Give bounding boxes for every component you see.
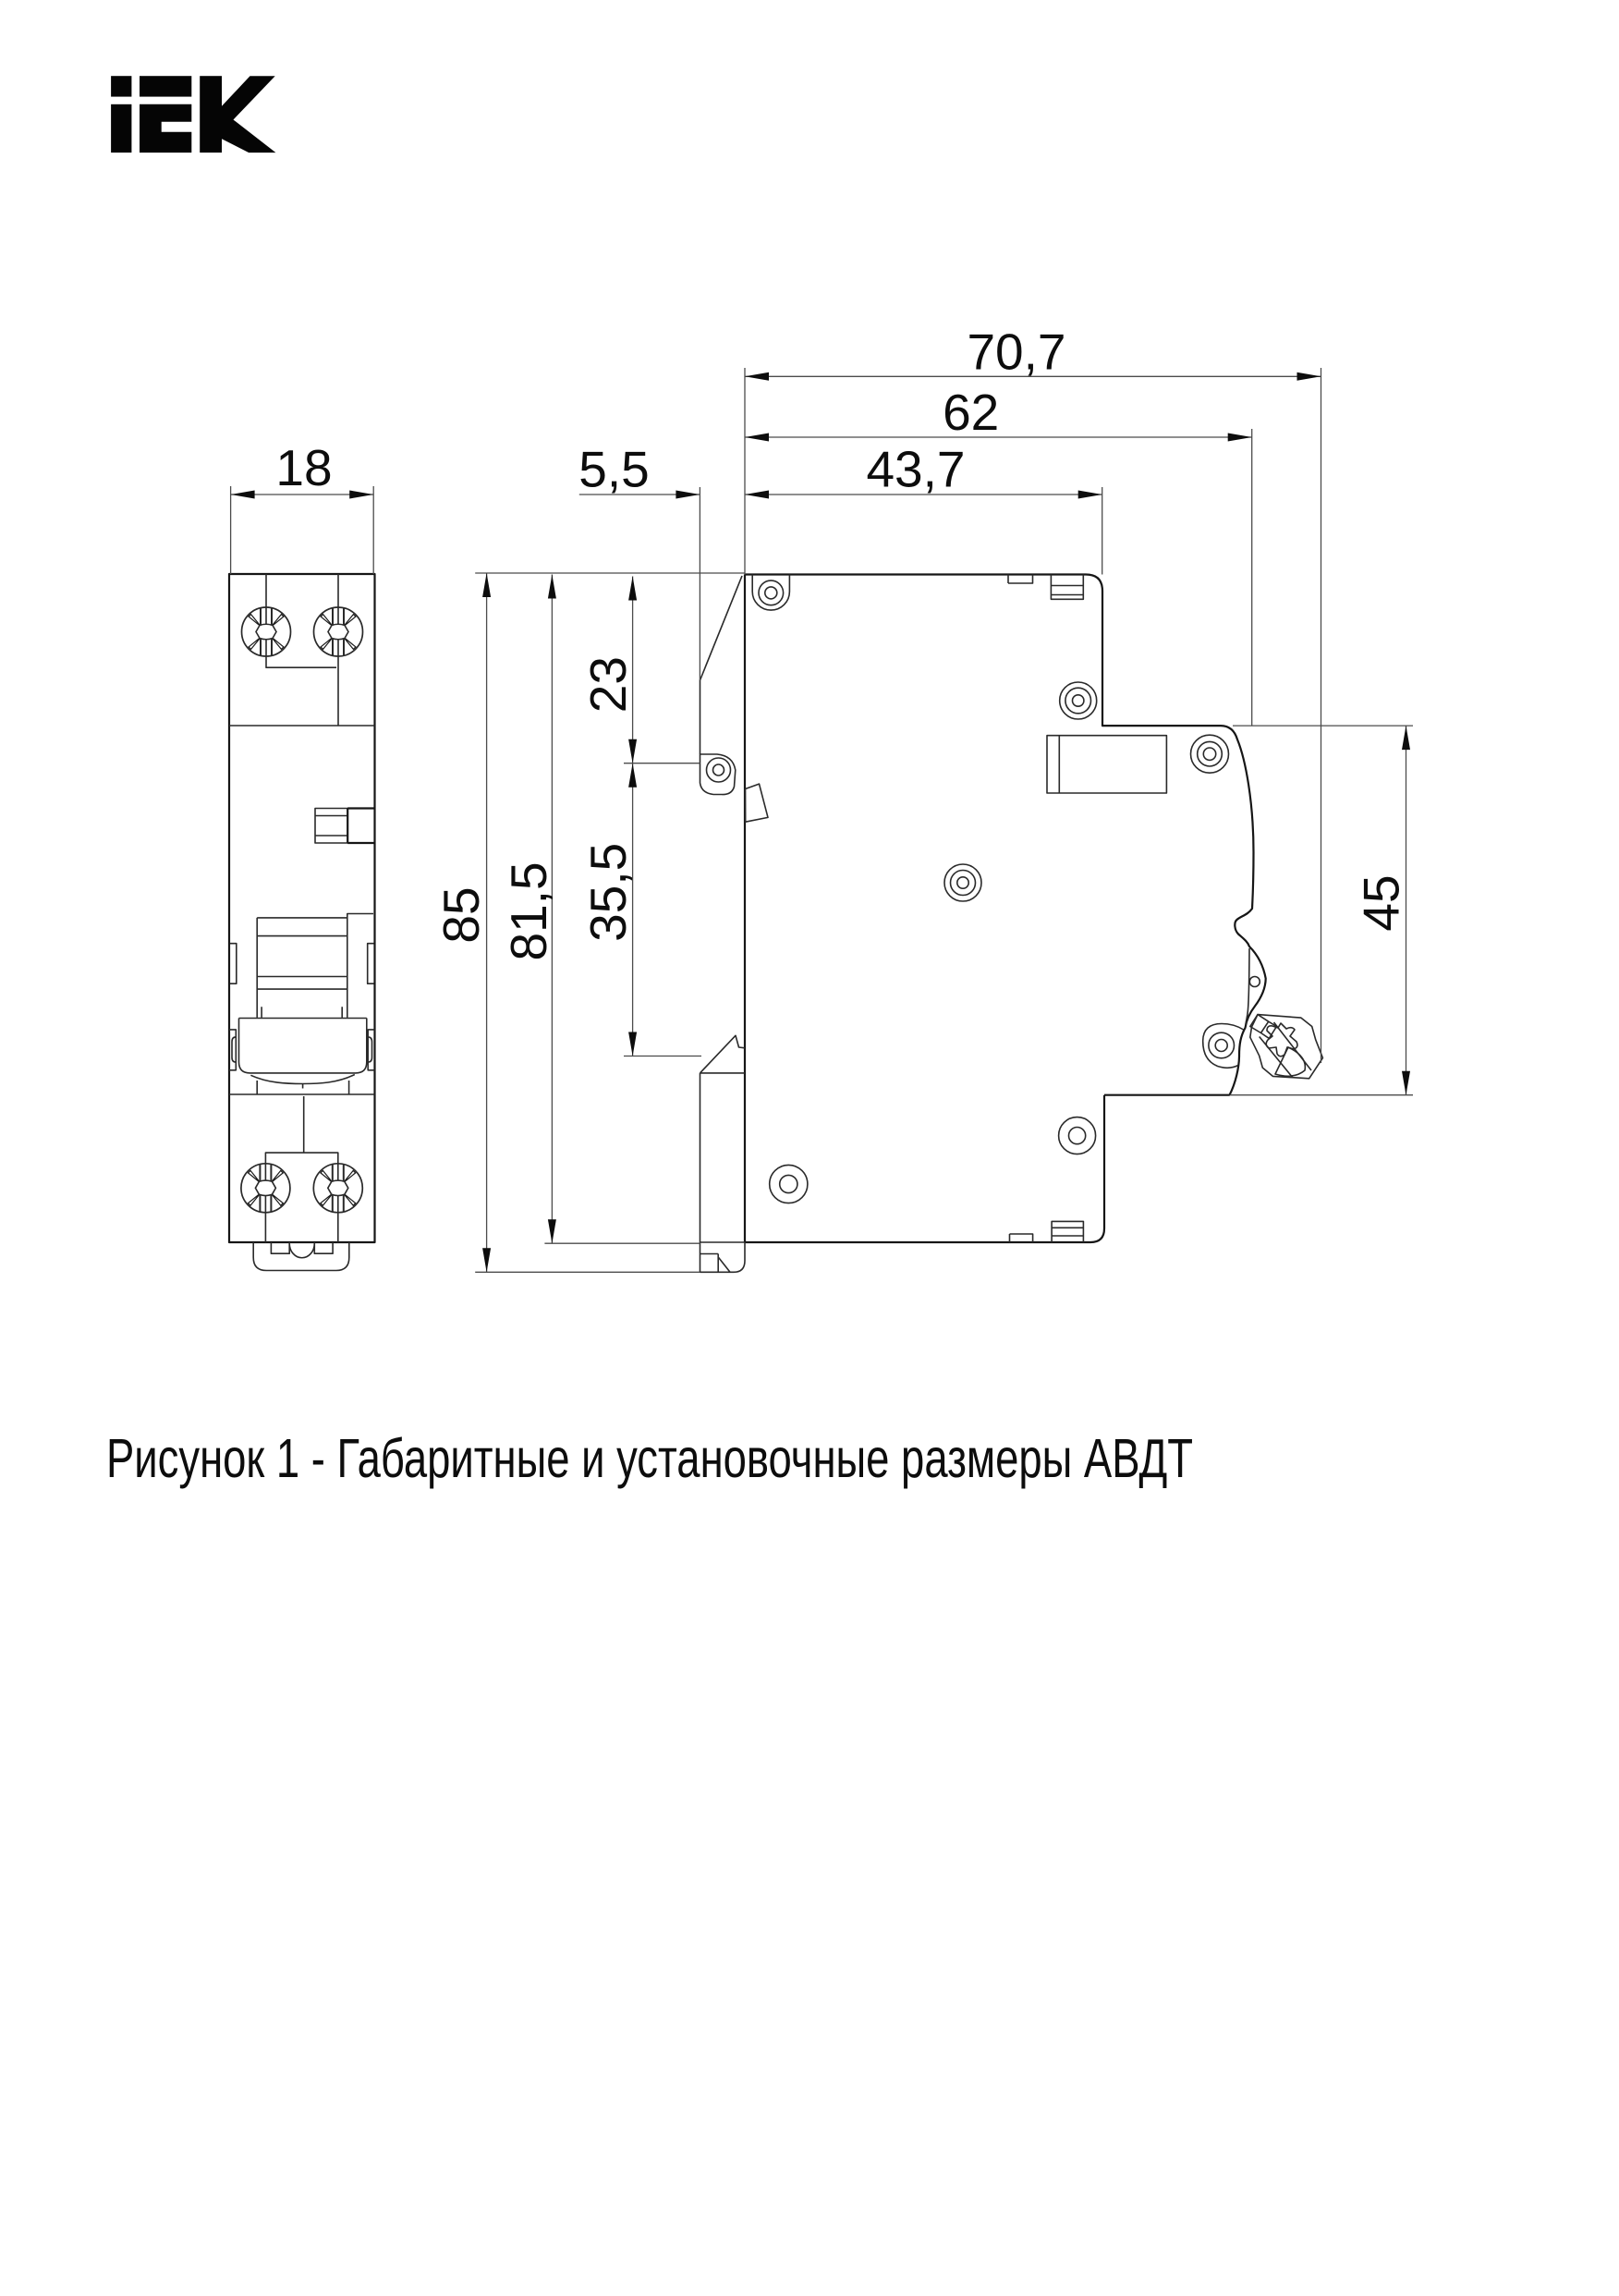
svg-text:5,5: 5,5: [578, 441, 649, 498]
svg-text:85: 85: [432, 886, 490, 943]
svg-text:Рисунок 1 - Габаритные и устан: Рисунок 1 - Габаритные и установочные ра…: [106, 1428, 1193, 1489]
svg-text:81,5: 81,5: [500, 861, 557, 960]
svg-text:23: 23: [579, 656, 637, 713]
svg-text:35,5: 35,5: [579, 843, 637, 942]
svg-text:18: 18: [275, 439, 332, 496]
svg-text:70,7: 70,7: [967, 324, 1065, 381]
svg-text:43,7: 43,7: [866, 441, 965, 498]
svg-text:45: 45: [1353, 874, 1410, 931]
svg-text:62: 62: [943, 384, 999, 441]
